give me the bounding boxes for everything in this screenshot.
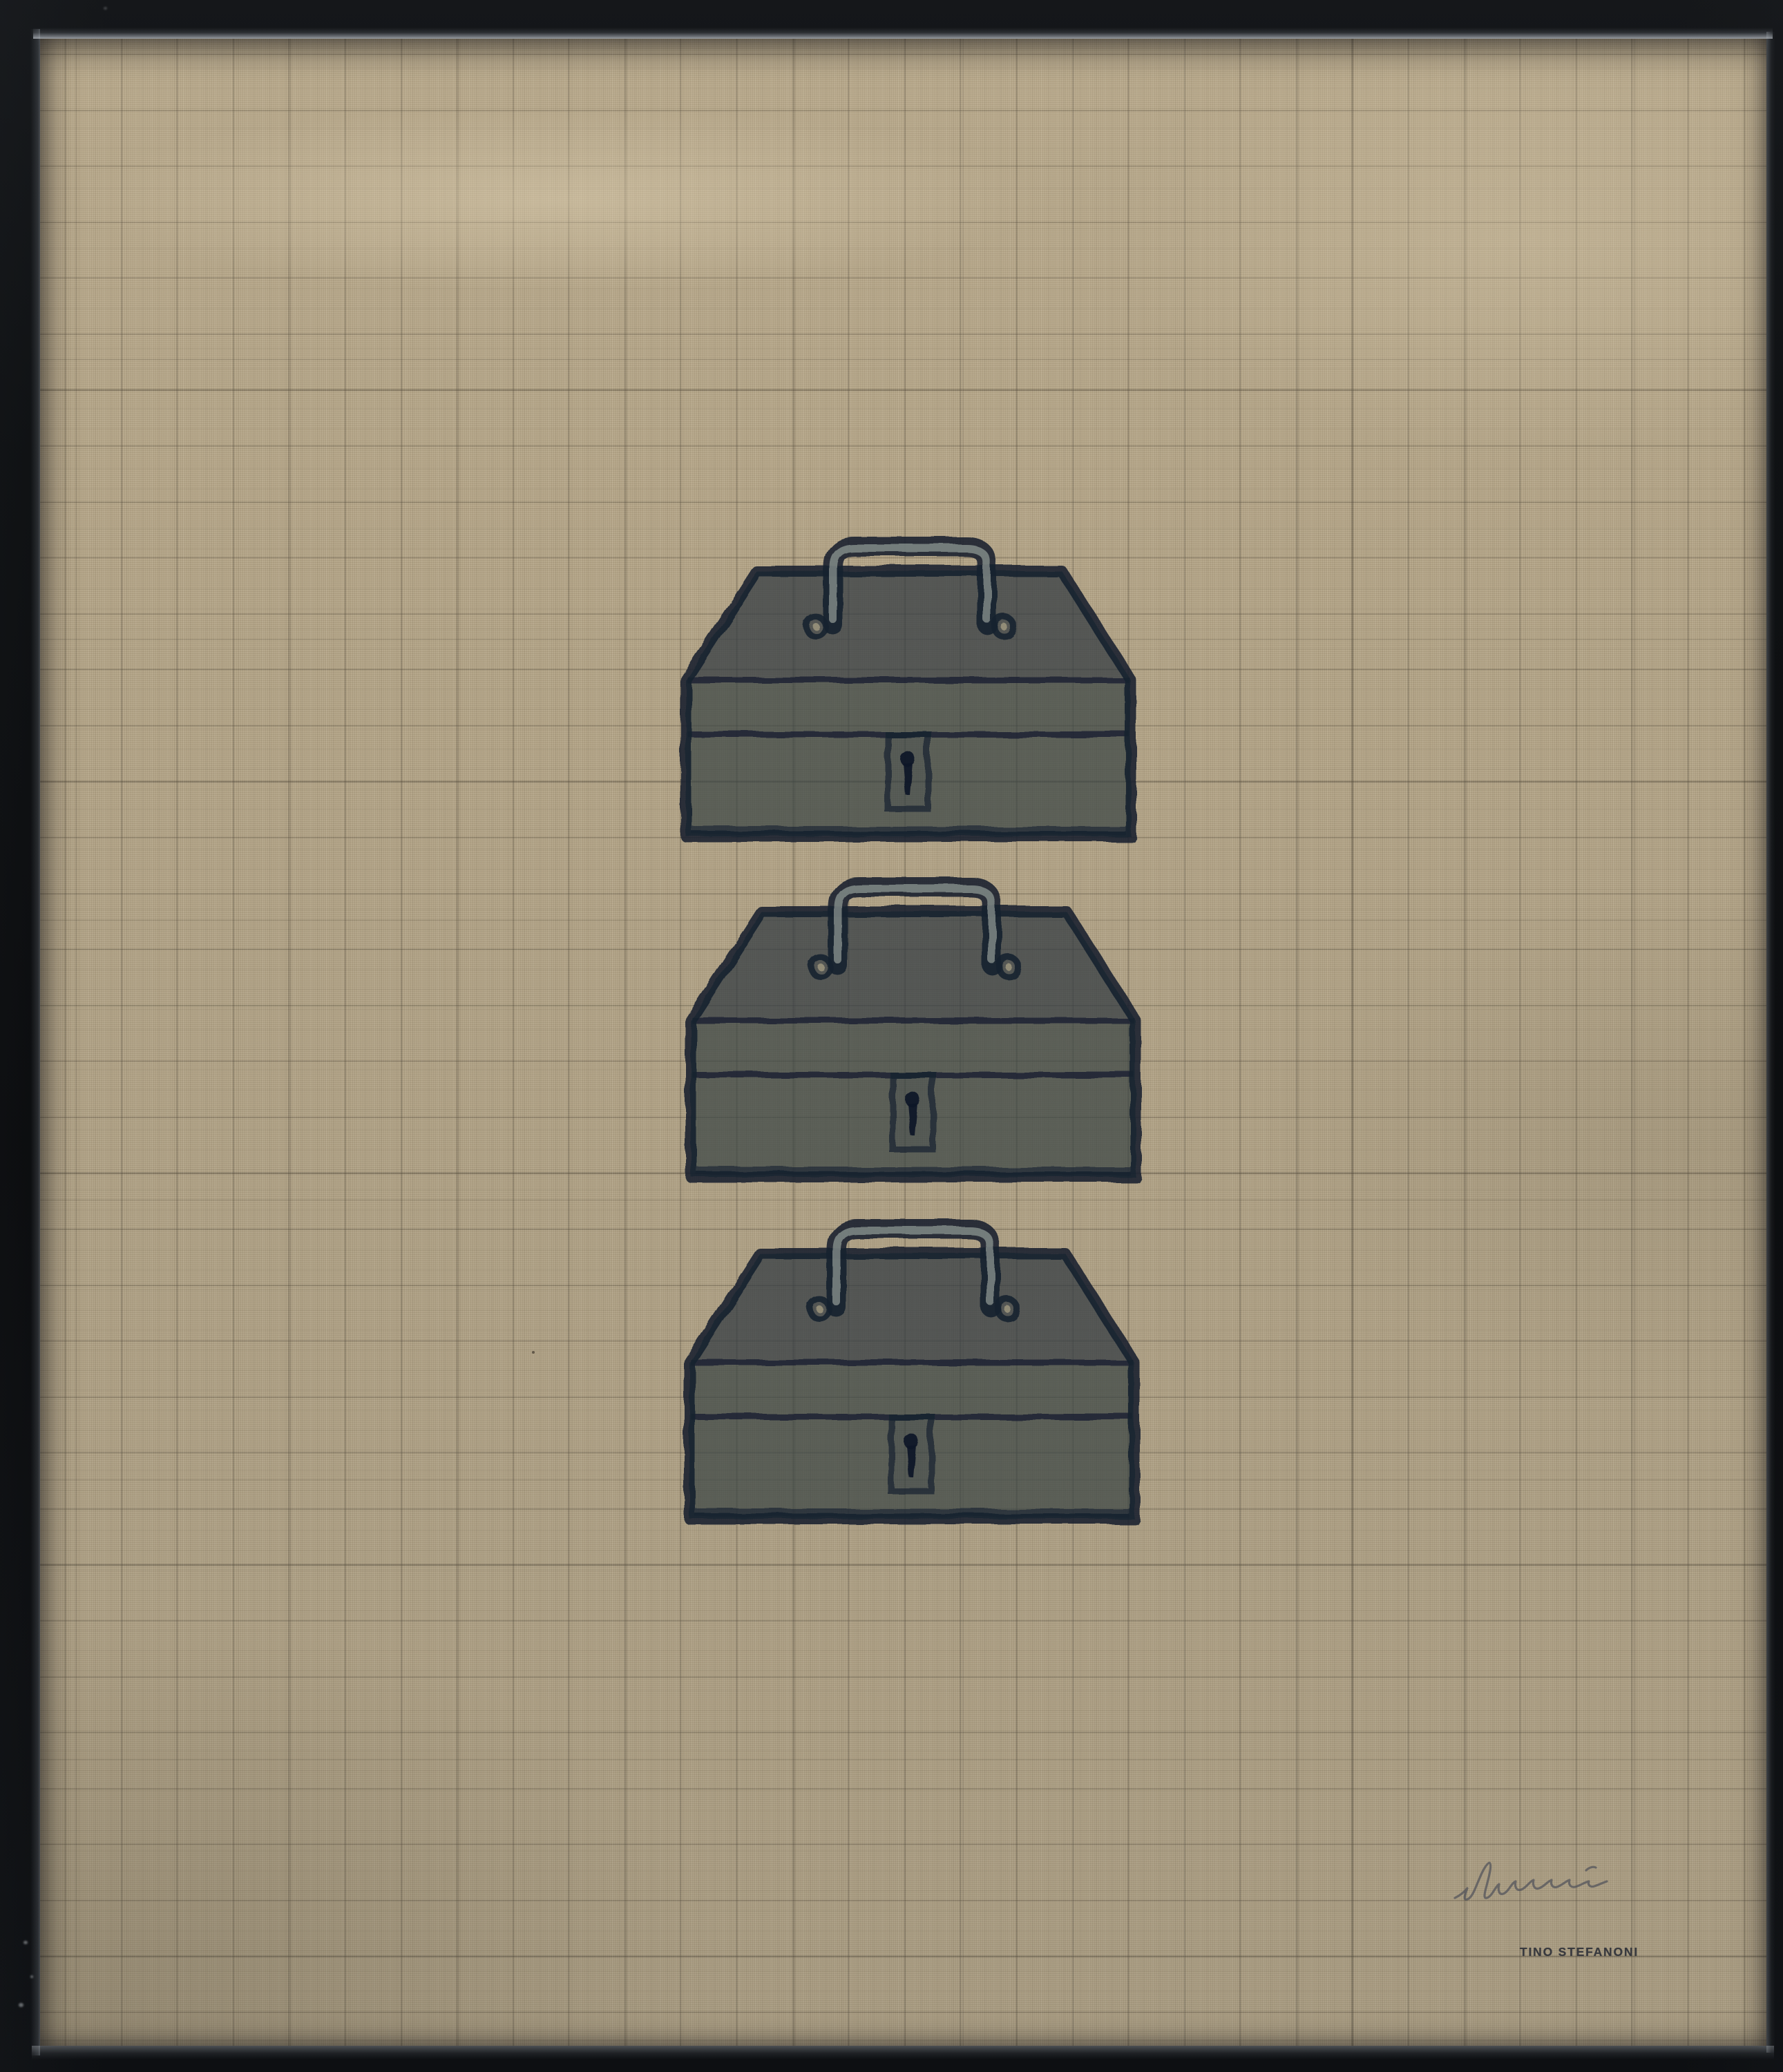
paint-fleck bbox=[532, 1351, 535, 1354]
toolbox-1 bbox=[680, 535, 1136, 846]
frame-inner-lip-right bbox=[1766, 32, 1775, 2053]
frame-scuff bbox=[104, 7, 107, 10]
frame-inner-lip-left bbox=[30, 29, 40, 2055]
frame-scuff bbox=[30, 1975, 33, 1978]
frame-inner-lip-bottom bbox=[32, 2046, 1774, 2060]
toolbox-shape bbox=[689, 1229, 1134, 1519]
toolbox-3 bbox=[684, 1218, 1140, 1528]
framed-artwork-photo: TINO STEFANONI bbox=[0, 0, 1783, 2072]
artist-signature-scribble bbox=[1451, 1859, 1628, 1908]
artwork-canvas: TINO STEFANONI bbox=[40, 39, 1766, 2046]
toolbox-shape bbox=[686, 546, 1131, 836]
signature-stroke bbox=[1455, 1863, 1607, 1899]
artist-name-stamp: TINO STEFANONI bbox=[1520, 1945, 1639, 1959]
frame-inner-lip-top bbox=[33, 28, 1773, 39]
toolbox-2 bbox=[685, 876, 1141, 1187]
frame-scuff bbox=[23, 1941, 28, 1944]
frame-scuff bbox=[19, 2003, 23, 2007]
toolbox-shape bbox=[691, 887, 1136, 1177]
